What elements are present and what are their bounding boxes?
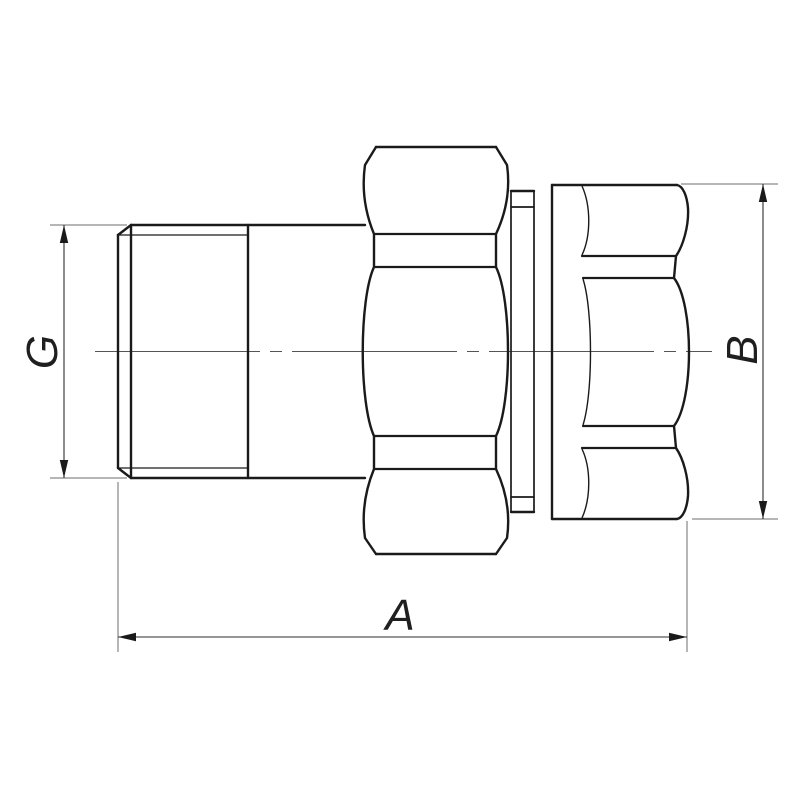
technical-drawing-canvas: G B A [0,0,800,800]
dim-a-arrow-right-icon [669,633,687,641]
dim-label-b: B [718,335,767,364]
dimension-a: A [118,482,687,652]
nut-right-outline [496,147,508,554]
dim-g-arrow-up-icon [60,225,68,243]
dim-label-g: G [18,335,67,369]
body-strip-arc-top [582,186,589,255]
male-chamfer-bottom [118,468,131,478]
nut-left-outline [363,147,376,554]
dim-label-a: A [382,591,414,640]
body-strip-arc-bottom [582,449,589,518]
dim-g-arrow-down-icon [60,460,68,478]
dim-b-arrow-down-icon [759,501,767,519]
union-nut [363,147,508,554]
male-chamfer-top [118,225,131,235]
technical-drawing-page: G B A [0,0,800,800]
dim-a-arrow-left-icon [118,633,136,641]
dim-b-arrow-up-icon [759,184,767,202]
